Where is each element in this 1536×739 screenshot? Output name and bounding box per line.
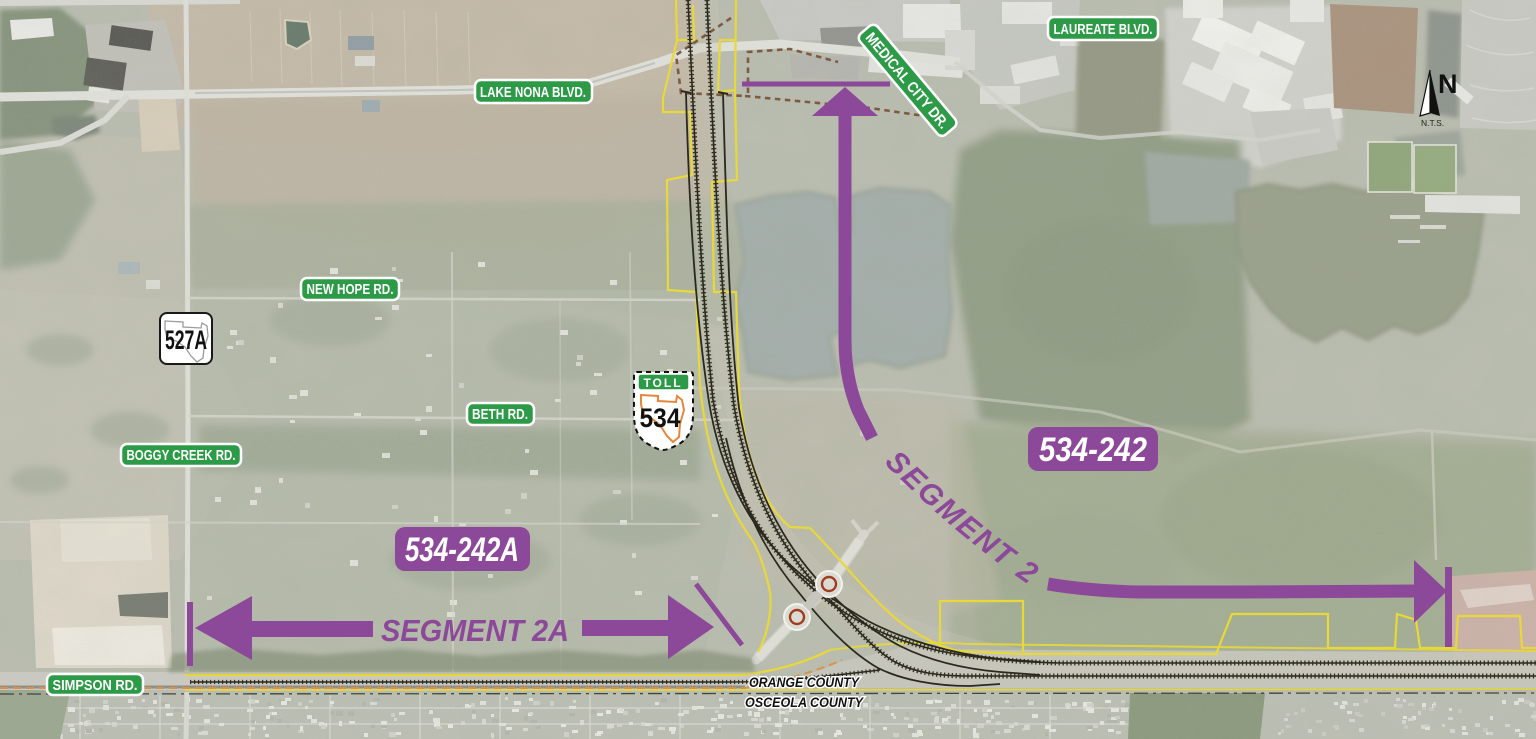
svg-text:534: 534: [640, 403, 681, 433]
svg-text:ORANGE COUNTY: ORANGE COUNTY: [749, 674, 860, 690]
svg-text:OSCEOLA COUNTY: OSCEOLA COUNTY: [745, 694, 864, 710]
svg-text:LAUREATE BLVD.: LAUREATE BLVD.: [1054, 21, 1153, 38]
svg-text:N.T.S.: N.T.S.: [1421, 118, 1444, 128]
svg-text:N: N: [1438, 69, 1458, 99]
svg-text:534-242: 534-242: [1039, 431, 1147, 469]
svg-text:LAKE NONA BLVD.: LAKE NONA BLVD.: [480, 84, 586, 101]
svg-text:NEW HOPE RD.: NEW HOPE RD.: [307, 282, 394, 298]
svg-text:SIMPSON RD.: SIMPSON RD.: [53, 678, 138, 694]
svg-text:BETH RD.: BETH RD.: [472, 407, 528, 423]
svg-text:534-242A: 534-242A: [405, 531, 519, 569]
svg-text:BOGGY CREEK RD.: BOGGY CREEK RD.: [127, 448, 236, 464]
svg-text:527A: 527A: [165, 325, 207, 355]
svg-text:SEGMENT 2A: SEGMENT 2A: [381, 613, 569, 648]
svg-text:TOLL: TOLL: [643, 376, 682, 390]
